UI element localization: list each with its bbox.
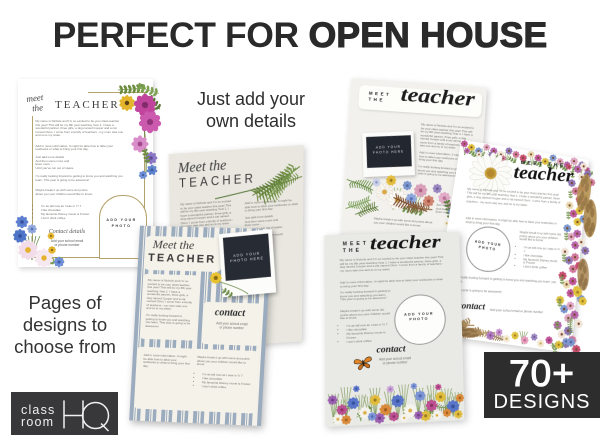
svg-text:room: room <box>21 415 54 429</box>
